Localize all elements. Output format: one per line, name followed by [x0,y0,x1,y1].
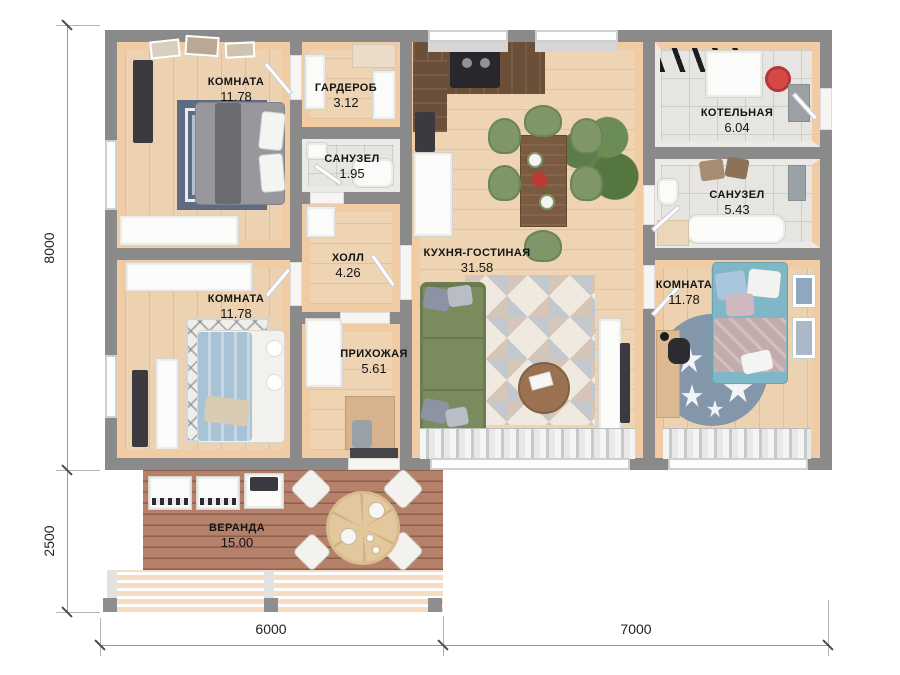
room-area: 15.00 [209,535,265,550]
door-opening [290,262,302,306]
fridge-cabinet [413,152,453,237]
picture-frame [793,275,815,307]
bed-throw [204,395,251,426]
label-bathroom-small: САНУЗЕЛ 1.95 [324,153,379,181]
extension-line [56,470,100,471]
plate [527,152,543,168]
deck-post [428,598,442,612]
window-blind [428,42,508,52]
deck-post [264,598,278,612]
curtains [420,428,635,459]
room-area: 11.78 [208,306,265,321]
wall-art [225,41,256,59]
shelf [352,44,396,68]
sink-basin [462,58,472,68]
tall-cabinet [155,358,179,450]
door-opening [400,245,412,300]
sofa-pillow [445,406,470,428]
sofa-pillow [447,284,474,307]
dimension-line-veranda-height [67,470,68,612]
cup [372,546,380,554]
dimension-label-8000: 8000 [41,232,57,263]
door-opening [310,192,344,204]
desk-chair [668,338,690,364]
bench-cushion [352,420,372,448]
room-name: КУХНЯ-ГОСТИНАЯ [423,247,530,259]
shelf [306,206,336,238]
window [430,458,630,470]
pillow [725,293,754,316]
room-area: 5.43 [709,202,764,217]
dining-chair [488,165,521,201]
label-bedroom-top-left: КОМНАТА 11.78 [208,76,265,104]
curtains [663,428,811,459]
bed-runner [215,103,241,204]
room-name: КОМНАТА [656,279,713,291]
window [535,30,618,42]
plate [340,528,357,545]
pillow [258,153,285,193]
window [105,355,117,418]
towel [699,158,726,181]
picture-frame [793,318,815,358]
tv-panel [133,60,153,143]
dimension-label-6000: 6000 [255,621,286,637]
window [105,140,117,210]
oven [415,112,435,152]
room-area: 4.26 [332,265,364,280]
pillow [258,111,286,151]
wardrobe-cabinet [125,262,253,292]
laundry-unit [705,50,763,98]
room-name: КОМНАТА [208,76,265,88]
dining-chair [570,118,603,154]
oven-door [250,477,278,491]
door-opening [643,185,655,225]
sink-basin [480,58,490,68]
bathtub [686,214,786,244]
dimension-line-width [100,645,828,646]
room-area: 11.78 [208,89,265,104]
label-bathroom-big: САНУЗЕЛ 5.43 [709,189,764,217]
towel [724,156,749,180]
tv-screen [620,343,630,423]
fruit-bowl [532,172,547,187]
window [668,458,808,470]
wall-art [149,38,181,59]
grill-knobs [200,498,236,505]
room-name: ГАРДЕРОБ [315,82,377,94]
label-boiler: КОТЕЛЬНАЯ 6.04 [701,107,773,135]
floor-plan: 8000 2500 6000 7000 [0,0,900,675]
coffee-table [518,362,570,414]
wall-art [184,35,219,57]
room-area: 6.04 [701,120,773,135]
tv-cabinet [598,318,622,435]
label-bedroom-right: КОМНАТА 11.78 [656,279,713,307]
label-wardrobe: ГАРДЕРОБ 3.12 [315,82,377,110]
door-opening [340,312,390,324]
entry-cabinet [305,318,343,388]
dining-chair [524,105,562,137]
plate [539,194,555,210]
extension-line [100,618,101,656]
dresser [119,215,239,246]
room-name: САНУЗЕЛ [324,153,379,165]
room-name: КОТЕЛЬНАЯ [701,107,773,119]
pillow [266,340,283,357]
label-entry-hall: ПРИХОЖАЯ 5.61 [340,348,408,376]
room-name: ПРИХОЖАЯ [340,348,408,360]
room-area: 5.61 [340,361,408,376]
room-name: ВЕРАНДА [209,522,265,534]
room-name: ХОЛЛ [332,252,364,264]
extension-line [443,616,444,656]
plate [368,502,385,519]
room-area: 3.12 [315,95,377,110]
dining-chair [570,165,603,201]
extension-line [56,25,100,26]
label-kitchen-living: КУХНЯ-ГОСТИНАЯ 31.58 [423,247,530,275]
towel-rack [788,165,806,201]
door-opening [643,265,655,309]
desk-lamp [660,332,669,341]
dimension-label-2500: 2500 [41,525,57,556]
label-hall: ХОЛЛ 4.26 [332,252,364,280]
dimension-label-7000: 7000 [620,621,651,637]
label-veranda: ВЕРАНДА 15.00 [209,522,265,550]
room-area: 31.58 [423,260,530,275]
door-opening-main-entrance [348,458,400,470]
room-area: 11.78 [656,292,713,307]
label-bedroom-mid-left: КОМНАТА 11.78 [208,293,265,321]
dining-chair [488,118,521,154]
kitchen-sink [450,48,500,88]
deck-post [103,598,117,612]
toilet [657,178,679,206]
pillow [266,374,283,391]
tv-panel [132,370,148,447]
grill-knobs [152,498,188,505]
door-opening-entrance-boiler [820,88,832,130]
door-opening [290,55,302,100]
room-name: КОМНАТА [208,293,265,305]
window-blind [535,42,617,52]
dimension-line-height [67,25,68,470]
veranda-table [326,491,400,565]
room-area: 1.95 [324,166,379,181]
extension-line [56,612,100,613]
cup [366,534,374,542]
window [428,30,508,42]
room-name: САНУЗЕЛ [709,189,764,201]
